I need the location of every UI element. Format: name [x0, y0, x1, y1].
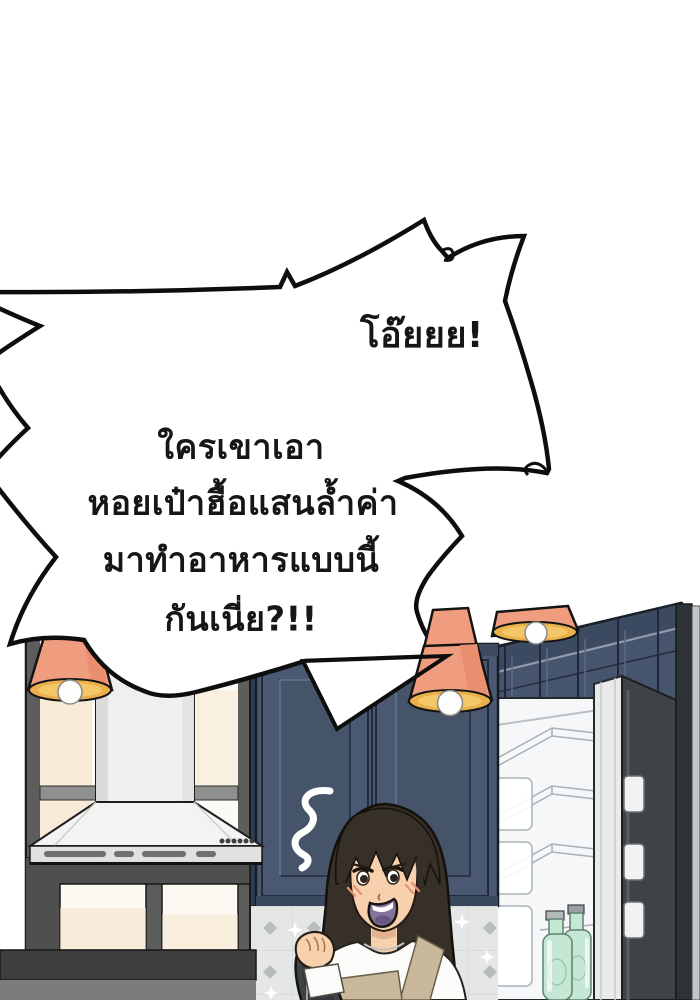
bubble-text-line-3: มาทำอาหารแบบนี้	[103, 542, 380, 579]
bubble-text-line-1: ใครเขาเอา	[157, 429, 324, 466]
webtoon-panel: โอ๊ยยย! ใครเขาเอา หอยเป๋าฮื้อแสนล้ำค่า ม…	[0, 0, 700, 1000]
pendant-lamp-right	[492, 606, 578, 644]
bubble-text-line-4: กันเนี่ย?!!	[164, 601, 317, 638]
window-sill	[0, 950, 256, 980]
bubble-text-shout: โอ๊ยยย!	[360, 316, 484, 356]
sleeve-cuff	[304, 964, 344, 998]
bubble-text-line-2: หอยเป๋าฮื้อแสนล้ำค่า	[88, 485, 399, 522]
fridge-door-bins	[494, 778, 532, 986]
